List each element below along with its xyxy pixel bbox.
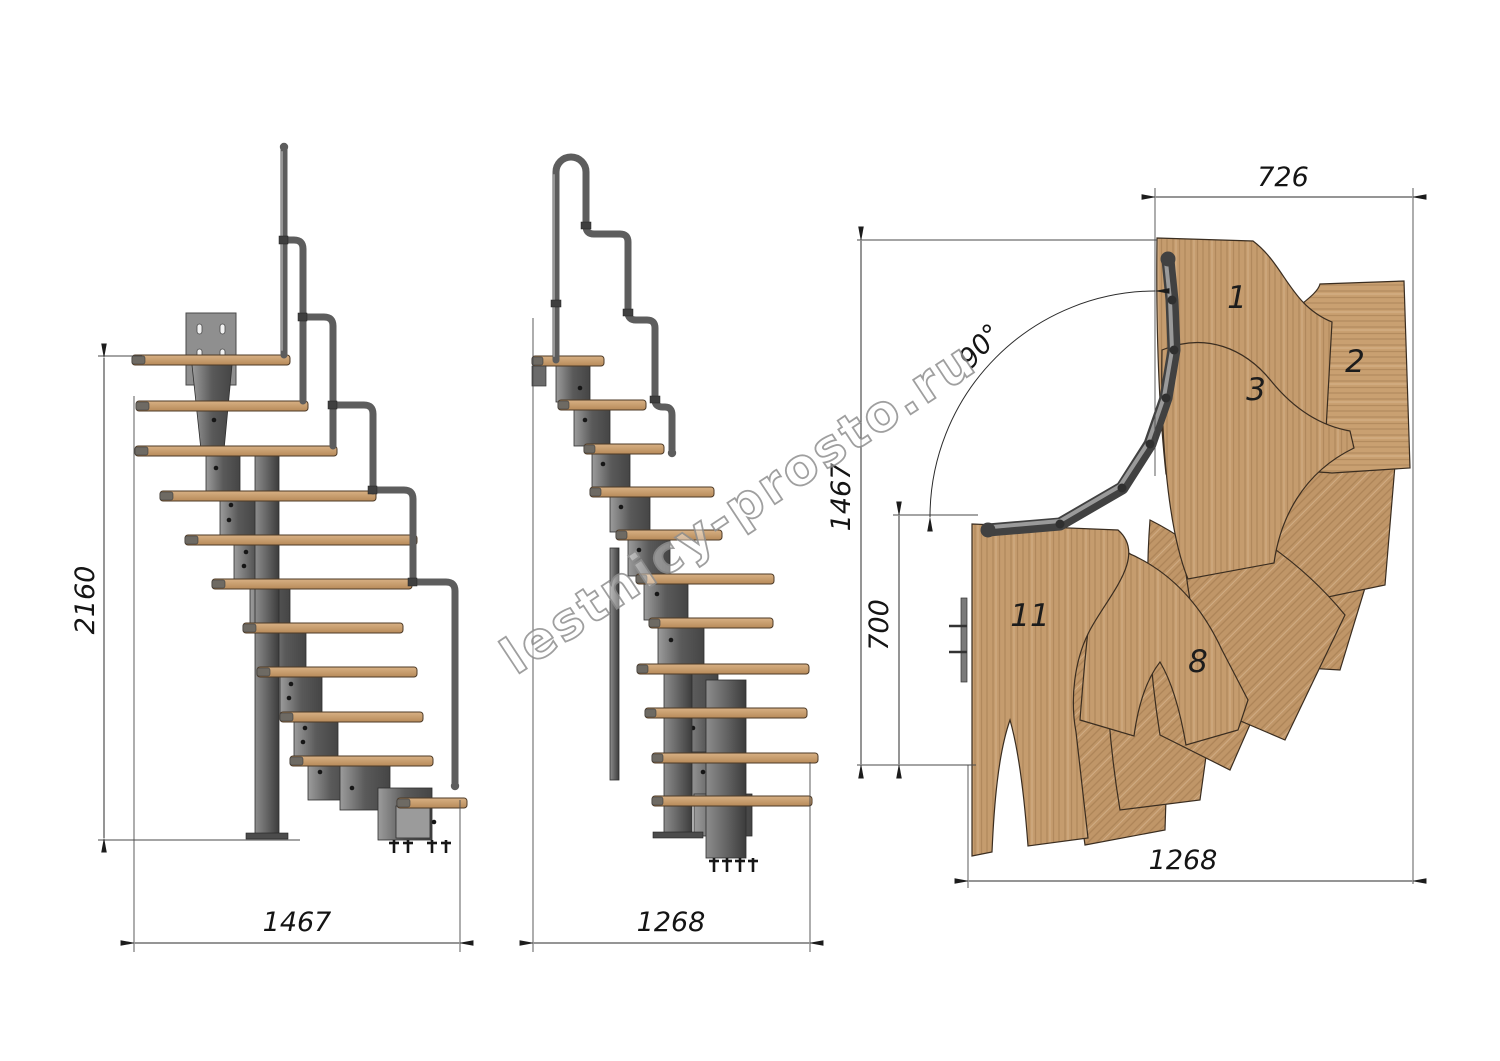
tread xyxy=(212,579,412,589)
column-foot xyxy=(246,833,288,839)
tread xyxy=(185,535,417,545)
dim-text-726: 726 xyxy=(1257,162,1309,193)
front-anchor-bolts xyxy=(709,858,758,872)
tread xyxy=(136,401,308,411)
front-handrail xyxy=(551,157,676,457)
plan-view: 1 2 3 8 11 xyxy=(949,238,1410,856)
rail-end-cap xyxy=(981,523,996,538)
tread xyxy=(160,491,376,501)
front-column-left-foot xyxy=(653,832,703,838)
support-column xyxy=(255,450,279,836)
dim-text-1268-plan: 1268 xyxy=(1149,845,1218,876)
step-label-1: 1 xyxy=(1227,280,1247,316)
dim-text-1467-side: 1467 xyxy=(263,907,332,938)
tread xyxy=(584,444,664,454)
staircase-drawing: 1 2 3 8 11 2160 1467 1268 xyxy=(0,0,1500,1061)
tread xyxy=(652,796,812,806)
tread xyxy=(257,667,417,677)
plan-handrail xyxy=(981,252,1179,538)
plan-wall-bracket xyxy=(949,598,967,682)
tread xyxy=(558,400,646,410)
tread xyxy=(645,708,807,718)
tread xyxy=(590,487,714,497)
anchor-bolts xyxy=(389,840,451,853)
dim-text-1268-front: 1268 xyxy=(637,907,706,938)
step-label-11: 11 xyxy=(1010,598,1049,634)
step-label-3: 3 xyxy=(1246,372,1266,408)
wall-bracket-front xyxy=(532,366,546,386)
tread xyxy=(290,756,433,766)
tread xyxy=(649,618,773,628)
front-column-left xyxy=(664,664,692,834)
tread xyxy=(637,664,809,674)
side-elevation-view xyxy=(132,143,467,853)
tread xyxy=(652,753,818,763)
front-column-right xyxy=(706,680,746,858)
step-label-2: 2 xyxy=(1345,344,1365,380)
tread xyxy=(280,712,423,722)
dim-text-700: 700 xyxy=(864,599,895,651)
spine-modules xyxy=(206,448,432,840)
step-label-8: 8 xyxy=(1188,644,1208,680)
rail-end-cap xyxy=(1161,252,1176,267)
tread xyxy=(135,446,337,456)
tread xyxy=(532,356,604,366)
dim-text-2160: 2160 xyxy=(70,566,101,635)
drawing-canvas: 1 2 3 8 11 2160 1467 1268 xyxy=(0,0,1500,1061)
tread xyxy=(243,623,403,633)
tread xyxy=(397,798,467,808)
tread xyxy=(132,355,290,365)
